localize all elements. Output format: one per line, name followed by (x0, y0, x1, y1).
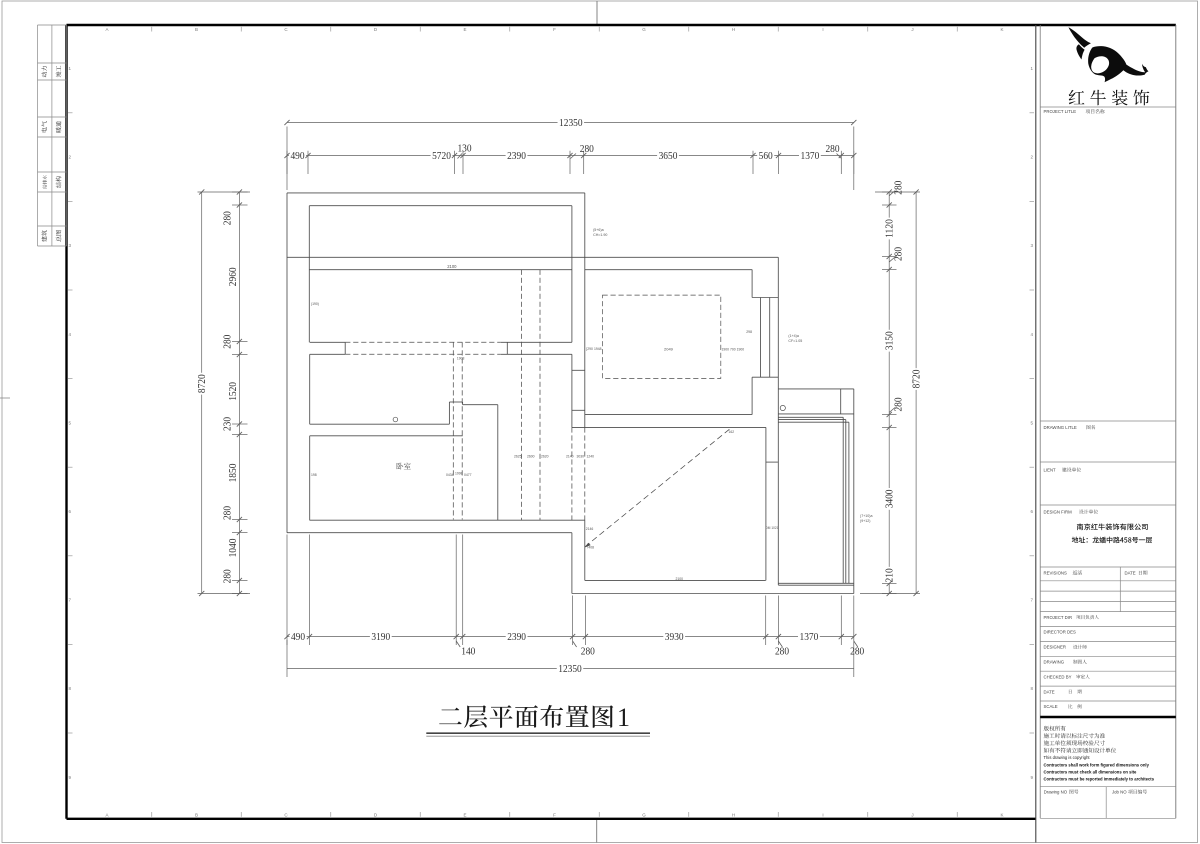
svg-text:(1+4)a: (1+4)a (788, 334, 799, 338)
svg-text:8720: 8720 (911, 370, 922, 389)
svg-text:7408: 7408 (587, 546, 595, 550)
svg-text:12350: 12350 (558, 664, 582, 675)
svg-text:210: 210 (884, 568, 895, 582)
svg-text:K: K (1000, 27, 1003, 32)
svg-text:198: 198 (311, 473, 317, 477)
svg-text:E: E (463, 27, 466, 32)
svg-text:2620: 2620 (541, 455, 549, 459)
svg-text:3400: 3400 (884, 490, 895, 509)
svg-text:490: 490 (291, 632, 305, 643)
svg-text:CHECKED BY: CHECKED BY (1044, 674, 1072, 679)
svg-text:1120: 1120 (884, 219, 895, 238)
svg-text:PROJECT LITLE: PROJECT LITLE (1044, 109, 1077, 114)
svg-text:280: 280 (223, 211, 234, 225)
svg-text:REVISIONS: REVISIONS (1044, 571, 1068, 576)
svg-text:DRAWING: DRAWING (1044, 660, 1065, 665)
svg-text:A: A (105, 813, 108, 818)
svg-text:1: 1 (617, 703, 630, 732)
svg-text:140: 140 (461, 647, 475, 658)
svg-text:H: H (732, 27, 735, 32)
svg-text:1948: 1948 (594, 347, 602, 351)
svg-text:280: 280 (894, 247, 905, 261)
svg-text:130: 130 (457, 144, 471, 155)
svg-text:162: 162 (729, 430, 735, 434)
svg-text:2140: 2140 (566, 455, 574, 459)
svg-text:1900 700 1900: 1900 700 1900 (722, 348, 745, 352)
svg-text:DRAWING LITLE: DRAWING LITLE (1044, 425, 1077, 430)
svg-text:2390: 2390 (507, 632, 526, 643)
svg-text:2625: 2625 (514, 455, 522, 459)
svg-text:DESIGNER: DESIGNER (1044, 645, 1066, 650)
svg-text:1370: 1370 (800, 632, 819, 643)
svg-text:Job NO: Job NO (1112, 790, 1127, 795)
svg-text:280: 280 (825, 144, 839, 155)
svg-text:I: I (822, 27, 823, 32)
svg-text:CF=1.05: CF=1.05 (788, 339, 802, 343)
svg-text:3650: 3650 (659, 151, 678, 162)
svg-text:298: 298 (746, 330, 752, 334)
svg-text:DM 1021: DM 1021 (766, 526, 779, 530)
svg-text:280: 280 (223, 506, 234, 520)
svg-text:This drawing is copyright: This drawing is copyright (1044, 755, 1091, 760)
svg-text:2100: 2100 (447, 264, 457, 269)
svg-text:1240: 1240 (587, 455, 595, 459)
svg-text:8720: 8720 (197, 374, 208, 393)
svg-text:280: 280 (223, 335, 234, 349)
svg-text:(7+10)a: (7+10)a (860, 514, 873, 518)
svg-text:280: 280 (894, 181, 905, 195)
svg-text:3190: 3190 (371, 632, 390, 643)
svg-text:Drawing NO: Drawing NO (1044, 790, 1068, 795)
svg-text:DESIGN FIRM: DESIGN FIRM (1044, 510, 1073, 515)
svg-text:G: G (642, 813, 646, 818)
svg-text:Contractors must check all dim: Contractors must check all dimensions on… (1044, 770, 1138, 775)
svg-text:280: 280 (894, 397, 905, 411)
svg-text:DATE: DATE (1044, 689, 1055, 694)
svg-text:I: I (822, 813, 823, 818)
svg-text:0477: 0477 (464, 473, 472, 477)
svg-text:560: 560 (759, 151, 773, 162)
svg-text:(9+12): (9+12) (860, 519, 871, 523)
svg-text:3150: 3150 (884, 331, 895, 350)
svg-text:F: F (553, 813, 556, 818)
svg-text:2600: 2600 (527, 455, 535, 459)
svg-text:12350: 12350 (559, 118, 583, 129)
svg-text:230: 230 (223, 417, 234, 431)
svg-text:2960: 2960 (228, 267, 239, 286)
svg-text:5720: 5720 (432, 151, 451, 162)
svg-text:2100: 2100 (676, 577, 684, 581)
svg-text:3930: 3930 (665, 632, 684, 643)
svg-text:E: E (463, 813, 466, 818)
svg-text:280: 280 (775, 647, 789, 658)
svg-text:B: B (195, 813, 198, 818)
svg-text:280: 280 (581, 647, 595, 658)
svg-text:280: 280 (580, 144, 594, 155)
svg-text:LIENT: LIENT (1044, 468, 1057, 473)
svg-text:490: 490 (290, 151, 304, 162)
svg-text:SCALE: SCALE (1044, 704, 1058, 709)
svg-text:1040: 1040 (228, 539, 239, 558)
svg-text:1908: 1908 (457, 357, 465, 361)
svg-text:F: F (553, 27, 556, 32)
svg-text:1370: 1370 (801, 151, 820, 162)
svg-text:1850: 1850 (228, 464, 239, 483)
svg-text:H: H (732, 813, 735, 818)
svg-text:PROJECT DIR: PROJECT DIR (1044, 615, 1073, 620)
svg-text:2146: 2146 (586, 527, 594, 531)
svg-text:J: J (911, 813, 913, 818)
svg-text:2049: 2049 (664, 347, 674, 352)
svg-text:1520: 1520 (228, 382, 239, 401)
svg-text:DATE: DATE (1125, 571, 1136, 576)
svg-text:0434: 0434 (446, 473, 454, 477)
svg-text:2390: 2390 (507, 151, 526, 162)
svg-text:[290: [290 (586, 347, 593, 351)
svg-text:K: K (1000, 813, 1003, 818)
svg-text:280: 280 (850, 647, 864, 658)
svg-text:(190): (190) (311, 302, 319, 306)
svg-text:280: 280 (223, 569, 234, 583)
svg-text:Contractors must be reported i: Contractors must be reported immediately… (1044, 777, 1155, 782)
svg-text:B: B (195, 27, 198, 32)
svg-text:G: G (642, 27, 646, 32)
svg-text:DIRECTOR DES: DIRECTOR DES (1044, 630, 1077, 635)
svg-text:(5+6)a: (5+6)a (593, 228, 604, 232)
svg-text:CH=1.90: CH=1.90 (593, 233, 607, 237)
svg-text:3030: 3030 (577, 455, 585, 459)
svg-text:A: A (105, 27, 108, 32)
svg-text:Contractors shall work form fi: Contractors shall work form figured dime… (1044, 763, 1150, 768)
svg-text:1998: 1998 (455, 472, 463, 476)
svg-text:J: J (911, 27, 913, 32)
